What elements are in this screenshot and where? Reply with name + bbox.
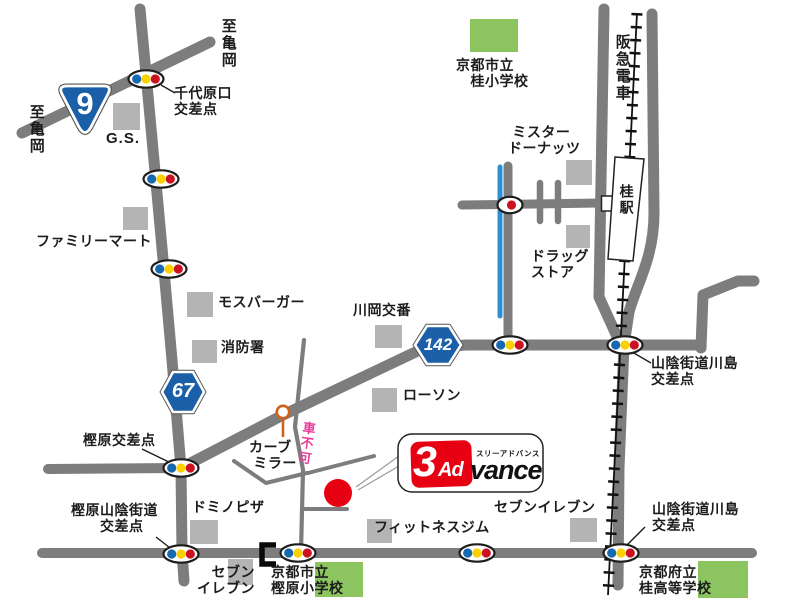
dominos-label: ドミノピザ xyxy=(192,500,265,516)
roads xyxy=(22,9,754,585)
to-kameoka-top-label: 至亀岡 xyxy=(219,18,236,69)
fire-station-building xyxy=(192,340,217,363)
kawaoka-koban-building xyxy=(375,325,402,348)
destination-marker xyxy=(324,479,352,507)
familymart-label: ファミリーマート xyxy=(36,234,152,250)
sanin-kawashima-bottom-label: 山陰街道川島 交差点 xyxy=(652,502,739,533)
gs-label: G.S. xyxy=(106,131,140,148)
road-northeast-hook xyxy=(701,281,754,348)
lawson-label: ローソン xyxy=(403,388,461,404)
dominos-building xyxy=(190,520,218,544)
hankyu-railway-label: 阪急電車 xyxy=(613,34,630,102)
route-142-number: 142 xyxy=(416,335,460,355)
logo-ad: Ad xyxy=(438,459,463,482)
seven-eleven-left-label: セブン イレブン xyxy=(197,565,255,596)
route-9-number: 9 xyxy=(65,86,105,122)
road-station-front xyxy=(462,203,601,205)
katsura-station-label: 桂駅 xyxy=(618,184,634,216)
logo-vance: vance xyxy=(470,455,542,486)
logo-katakana: スリーアドバンス xyxy=(476,448,540,459)
kashihara-elementary-label: 京都市立 樫原小学校 xyxy=(271,565,344,596)
kashihara-sanin-label: 樫原山陰街道 交差点 xyxy=(71,503,158,534)
road-kashihara-west xyxy=(48,468,181,469)
kashihara-intersection-label: 樫原交差点 xyxy=(83,433,156,449)
chiyoharaguchi-label: 千代原口 交差点 xyxy=(174,86,232,117)
drugstore-label: ドラッグ ストア xyxy=(531,249,589,280)
logo-three: 3 xyxy=(413,438,436,487)
seven-eleven-right-label: セブンイレブン xyxy=(494,500,596,516)
katsura-elementary-building xyxy=(470,19,518,52)
gs-building xyxy=(113,103,140,130)
mister-donut-label: ミスター ドーナッツ xyxy=(508,125,581,156)
katsura-elementary-label: 京都市立 桂小学校 xyxy=(456,58,529,89)
seven-eleven-right-building xyxy=(570,518,597,542)
kawaoka-koban-label: 川岡交番 xyxy=(353,303,411,319)
mos-burger-label: モスバーガー xyxy=(218,295,305,311)
drugstore-building xyxy=(566,225,590,248)
access-map: 至亀岡 至亀岡 千代原口 交差点 G.S. ファミリーマート モスバーガー 消防… xyxy=(0,0,800,610)
street-branch-northeast xyxy=(308,456,374,473)
mister-donut-building xyxy=(566,160,592,185)
mosburger-building xyxy=(187,292,213,317)
lawson-building xyxy=(372,388,397,412)
fire-station-label: 消防署 xyxy=(221,340,265,356)
logo-leader-lines xyxy=(356,456,399,490)
curve-mirror-label: カーブ ミラー xyxy=(249,440,297,471)
familymart-building xyxy=(123,207,148,230)
route-67-number: 67 xyxy=(163,380,203,403)
katsura-high-label: 京都府立 桂高等学校 xyxy=(639,565,712,596)
sanin-kawashima-mid-label: 山陰街道川島 交差点 xyxy=(651,356,738,387)
fitness-gym-label: フィットネスジム xyxy=(374,520,490,536)
to-kameoka-left-label: 至亀岡 xyxy=(27,104,44,155)
